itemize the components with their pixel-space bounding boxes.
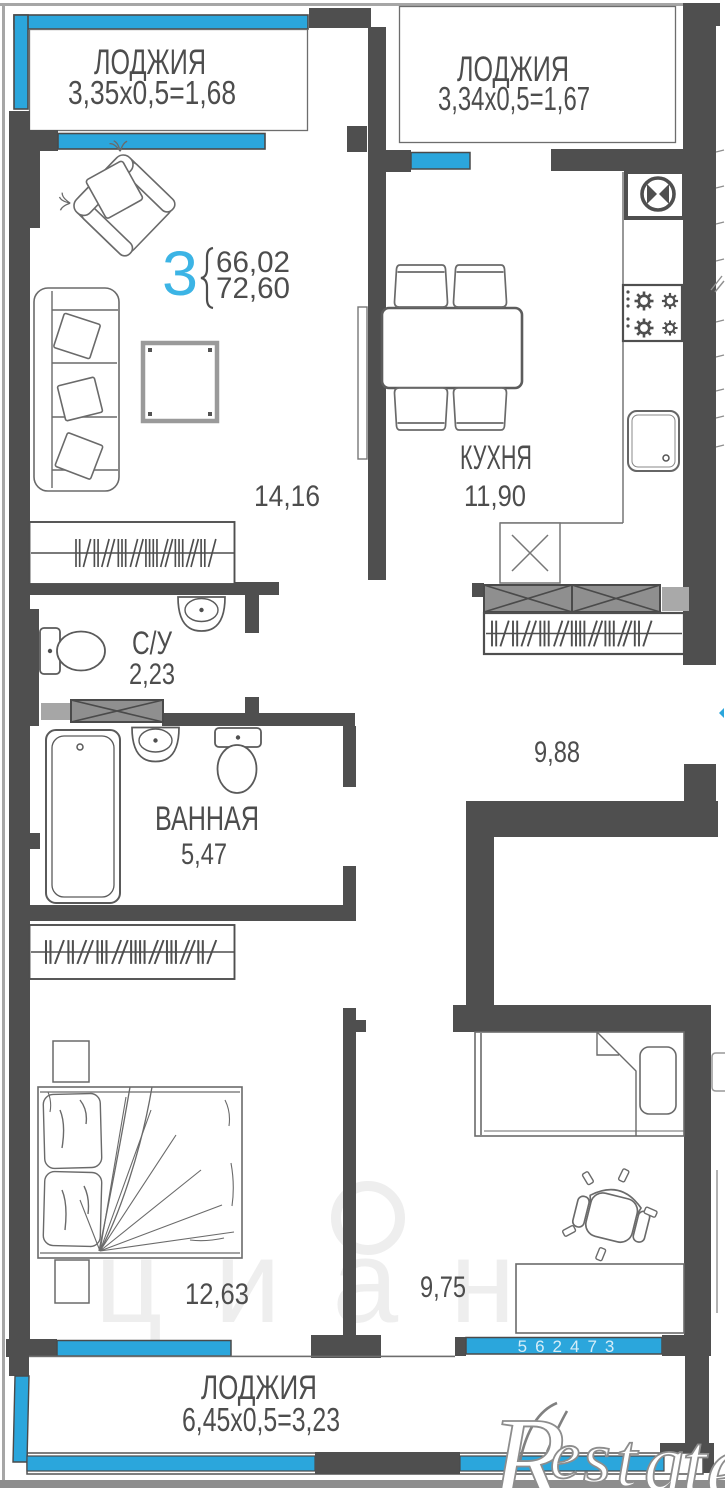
svg-text:3,34х0,5=1,67: 3,34х0,5=1,67	[438, 80, 590, 117]
svg-text:a: a	[644, 1417, 685, 1488]
svg-text:С/У: С/У	[132, 625, 173, 661]
svg-text:9,88: 9,88	[534, 736, 580, 769]
svg-text:6,45х0,5=3,23: 6,45х0,5=3,23	[182, 1401, 340, 1438]
svg-text:9,75: 9,75	[420, 1271, 466, 1304]
svg-text:3: 3	[162, 239, 198, 309]
svg-text:12,63: 12,63	[185, 1278, 249, 1311]
svg-text:72,60: 72,60	[216, 272, 290, 305]
svg-text:14,16: 14,16	[254, 480, 320, 513]
svg-text:3,35х0,5=1,68: 3,35х0,5=1,68	[68, 74, 236, 111]
svg-text:КУХНЯ: КУХНЯ	[460, 439, 532, 477]
svg-text:562473: 562473	[518, 1337, 623, 1356]
svg-text:11,90: 11,90	[464, 480, 526, 513]
svg-text:2,23: 2,23	[129, 658, 175, 691]
svg-text:ВАННАЯ: ВАННАЯ	[155, 800, 259, 838]
svg-text:5,47: 5,47	[181, 838, 227, 871]
svg-text:s: s	[583, 1418, 611, 1488]
svg-text:e: e	[550, 1417, 580, 1488]
svg-text:t: t	[616, 1419, 639, 1488]
svg-text:t: t	[682, 1417, 709, 1488]
svg-text:e: e	[706, 1415, 725, 1488]
